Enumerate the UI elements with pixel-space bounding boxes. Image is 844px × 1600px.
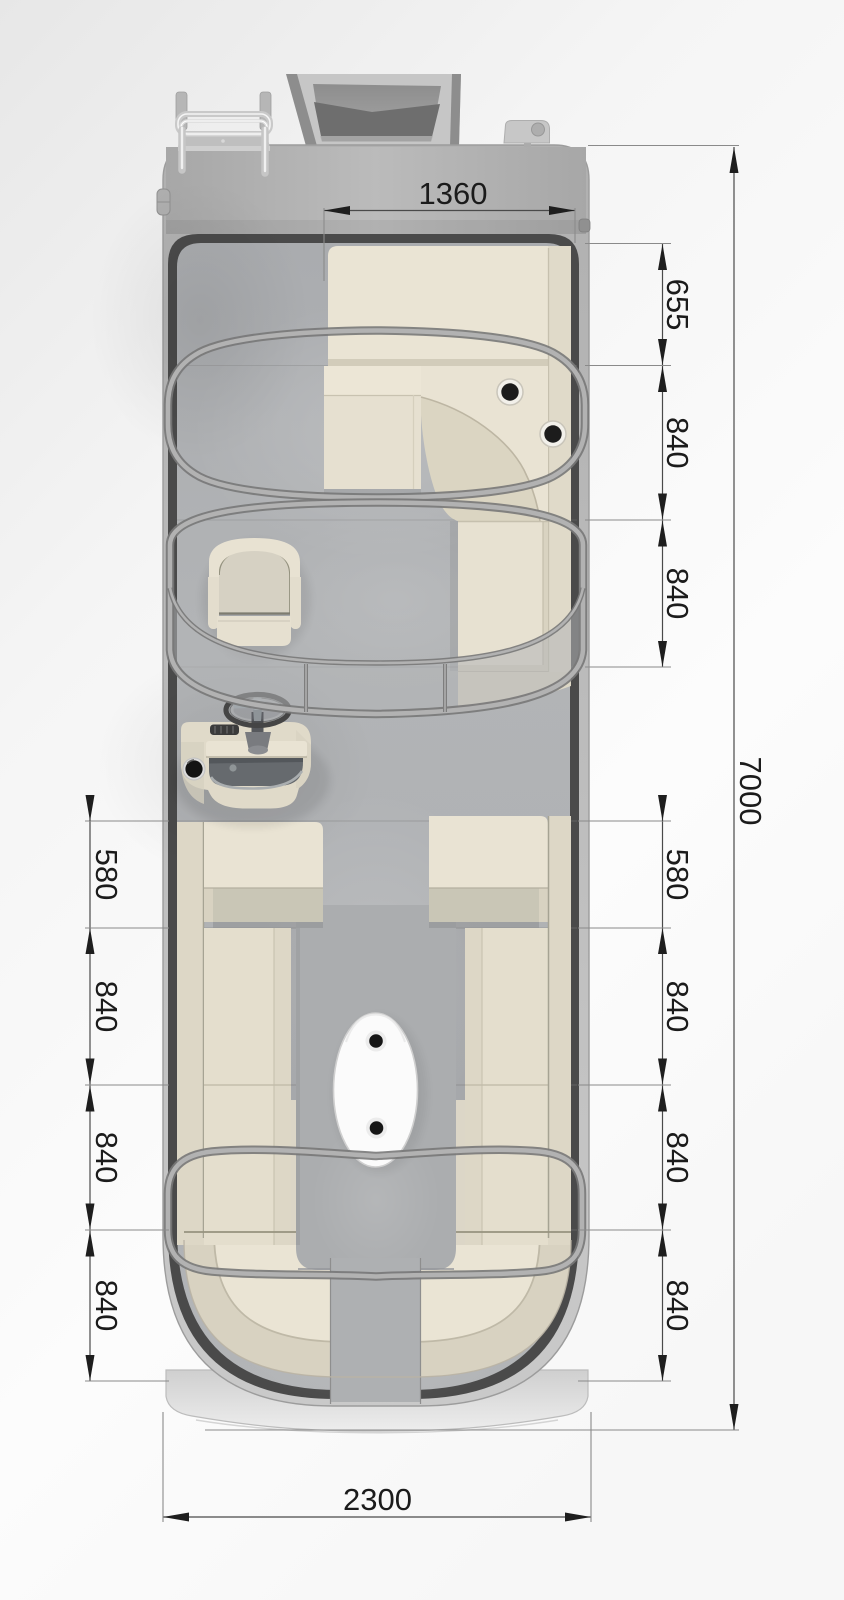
svg-text:7000: 7000	[733, 757, 768, 826]
svg-text:840: 840	[89, 1280, 124, 1332]
svg-text:655: 655	[660, 279, 695, 331]
svg-text:840: 840	[660, 981, 695, 1033]
svg-text:580: 580	[89, 849, 124, 901]
svg-text:1360: 1360	[419, 176, 488, 211]
svg-text:840: 840	[89, 981, 124, 1033]
svg-text:580: 580	[660, 849, 695, 901]
svg-text:840: 840	[89, 1132, 124, 1184]
svg-text:840: 840	[660, 568, 695, 620]
svg-text:840: 840	[660, 1132, 695, 1184]
svg-text:840: 840	[660, 417, 695, 469]
svg-text:840: 840	[660, 1280, 695, 1332]
svg-text:2300: 2300	[343, 1482, 412, 1517]
